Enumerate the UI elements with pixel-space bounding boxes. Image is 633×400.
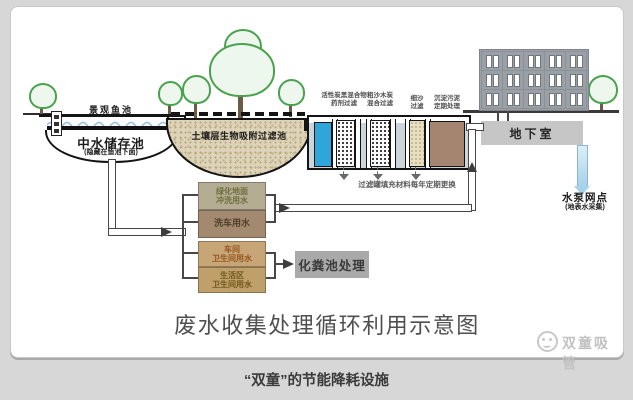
- usage-box-greening: 绿化地面冲洗用水: [198, 182, 266, 210]
- factory-building: [479, 49, 589, 111]
- manifold-line: [182, 277, 198, 279]
- manifold-line: [182, 194, 184, 279]
- soton-logo-icon: [537, 331, 558, 352]
- usage-box-workshop-toilet: 车间卫生间用水: [198, 241, 266, 267]
- storage-pool-note: (隐藏在鱼池下面): [59, 147, 163, 157]
- manifold-line: [182, 194, 198, 196]
- tree-icon: [182, 75, 211, 104]
- fish-pond-label: 景观鱼池: [69, 103, 153, 116]
- watermark-text: 双童吸管: [562, 333, 623, 373]
- storage-outlet-pipe: [108, 159, 116, 235]
- filter-column-sludge: [429, 121, 465, 167]
- right-arrow-icon: [161, 227, 172, 237]
- septic-box: 化粪池处理: [295, 251, 369, 278]
- filter-tank: [307, 115, 471, 170]
- soil-filter-pool: [166, 118, 312, 178]
- diagram-title: 废水收集处理循环利用示意图: [51, 308, 603, 340]
- filter-column-sand-charcoal: [370, 120, 390, 167]
- drain-line: [274, 194, 276, 223]
- filter-column-blue: [314, 122, 332, 167]
- up-arrow-icon: [467, 162, 477, 172]
- manifold-line: [182, 252, 198, 254]
- septic-label: 化粪池处理: [298, 255, 366, 274]
- tree-icon: [158, 81, 183, 106]
- filter-column-fine-sand: [409, 120, 425, 167]
- diagram-card: 景观鱼池 中水储存池 (隐藏在鱼池下面) 土壤层生物吸附过滤池 活性炭黑混合物药…: [10, 6, 624, 358]
- basement-label: 地下室: [509, 125, 554, 142]
- supply-pipe: [108, 228, 186, 236]
- stage-label-4: 沉淀污泥定期处理: [423, 95, 471, 111]
- perforated-pipe: [171, 112, 305, 116]
- tank-note: 过滤罐填充材料每年定期更换: [327, 179, 487, 190]
- usage-box-living-toilet: 生活区卫生间用水: [198, 267, 266, 293]
- page-caption: “双童”的节能降耗设施: [0, 369, 633, 390]
- pump-riser-pipe: [577, 145, 588, 186]
- right-arrow-icon: [279, 203, 290, 213]
- tree-icon: [588, 75, 618, 104]
- tree-icon: [29, 83, 57, 109]
- reuse-return-pipe: [274, 204, 472, 212]
- tree-icon: [278, 79, 305, 106]
- soil-filter-label: 土壤层生物吸附过滤池: [169, 129, 309, 142]
- manifold-line: [182, 221, 198, 223]
- usage-box-carwash: 洗车用水: [198, 210, 266, 238]
- drain-line: [274, 252, 276, 279]
- right-arrow-icon: [283, 259, 294, 269]
- basement-box: 地下室: [481, 121, 583, 145]
- filter-column-carbon: [336, 120, 355, 167]
- pump-note: (地表水采集): [544, 202, 626, 212]
